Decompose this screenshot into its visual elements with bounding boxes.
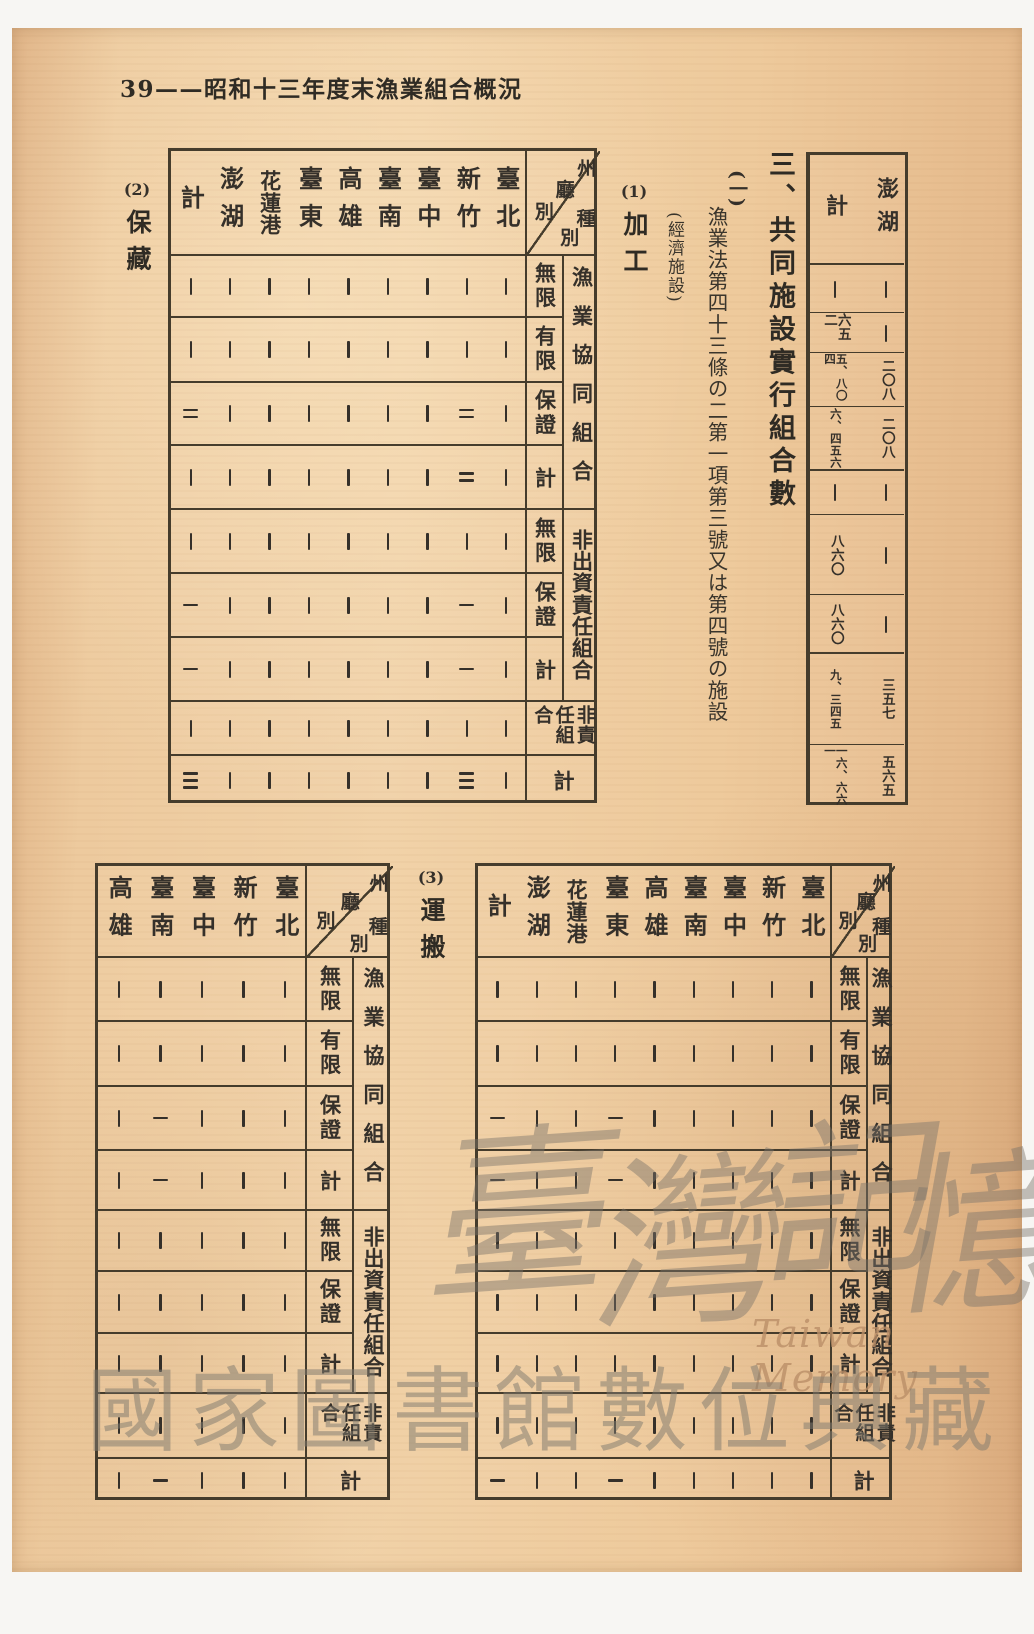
value-dash — [159, 1355, 161, 1372]
table-rule — [98, 1270, 353, 1272]
axis-label: 別 — [316, 906, 335, 933]
data-cell: 二〇八 — [860, 353, 912, 407]
value-dash — [118, 1172, 120, 1189]
data-cell — [478, 1271, 517, 1333]
table-rule — [171, 254, 594, 256]
column-header-label: 臺北 — [489, 166, 524, 240]
value-dash — [118, 1232, 120, 1249]
row-label: 非責任組合 — [831, 1393, 895, 1458]
data-cell — [556, 1333, 595, 1393]
value-number-3 — [183, 772, 198, 789]
data-cell — [674, 1150, 713, 1210]
data-cell — [674, 1210, 713, 1271]
value-number-1 — [459, 604, 474, 607]
value-dash — [575, 1472, 577, 1489]
table-rule — [478, 1392, 889, 1394]
axis-label: 種 — [577, 204, 596, 231]
data-cell — [556, 1393, 595, 1458]
row-label-text: 無限 — [315, 965, 345, 1014]
table-rule — [478, 1332, 867, 1334]
value-dash — [308, 597, 310, 614]
value-dash — [268, 341, 270, 358]
data-cell — [517, 1333, 556, 1393]
value-dash — [614, 1232, 616, 1249]
column-header-label: 計 — [819, 194, 851, 227]
row-label: 無限 — [831, 958, 867, 1021]
value-dash — [834, 484, 836, 501]
data-cell — [792, 1210, 831, 1271]
column-header-label: 新竹 — [755, 875, 790, 949]
table-rule — [171, 754, 594, 756]
data-cell — [792, 1458, 831, 1503]
value-dash — [496, 981, 498, 998]
data-cell — [171, 509, 210, 573]
data-cell — [408, 573, 447, 637]
value-dash — [505, 405, 507, 422]
value-dash — [575, 1045, 577, 1062]
value-dash — [201, 1355, 203, 1372]
value-dash — [347, 597, 349, 614]
data-cell — [289, 573, 328, 637]
column-header-臺中: 臺中 — [713, 866, 752, 958]
value-number: 二〇八 — [879, 417, 893, 460]
data-cell — [674, 1393, 713, 1458]
data-cell — [792, 1021, 831, 1086]
data-cell — [171, 573, 210, 637]
value-dash — [426, 341, 428, 358]
data-cell — [223, 1333, 265, 1393]
row-label-text: 非責任組合 — [318, 1403, 382, 1449]
data-cell — [98, 1150, 140, 1210]
data-cell: 九、三四五 — [810, 653, 860, 745]
data-cell — [98, 958, 140, 1021]
value-dash — [536, 1232, 538, 1249]
column-header-計: 計 — [810, 155, 860, 265]
value-dash — [426, 597, 428, 614]
value-dash — [347, 533, 349, 550]
value-dash — [268, 533, 270, 550]
value-dash — [732, 1045, 734, 1062]
row-label: 保證 — [526, 573, 563, 637]
value-dash — [308, 720, 310, 737]
value-dash — [885, 281, 887, 298]
column-header-label: 臺南 — [370, 166, 405, 240]
value-dash — [242, 1045, 244, 1062]
data-cell — [329, 382, 368, 445]
value-dash — [575, 981, 577, 998]
data-cell — [98, 1021, 140, 1086]
value-dash — [284, 1045, 286, 1062]
row-label-text: 保證 — [834, 1278, 864, 1327]
value-dash — [190, 341, 192, 358]
table-rule — [525, 151, 527, 800]
value-dash — [732, 1294, 734, 1311]
value-dash — [229, 720, 231, 737]
data-cell — [98, 1393, 140, 1458]
value-dash — [732, 1355, 734, 1372]
row-label-text: 無限 — [530, 262, 560, 311]
value-dash — [284, 981, 286, 998]
column-header-臺南: 臺南 — [140, 866, 182, 958]
subsection-number: (3) — [418, 868, 444, 887]
data-cell — [264, 958, 306, 1021]
table-processing: 計澎湖花蓮港臺東高雄臺南臺中新竹臺北州廳別種別無限有限保證計無限保證計非責任組合… — [168, 148, 597, 803]
data-cell — [223, 1021, 265, 1086]
data-cell — [487, 701, 526, 755]
row-label-text: 計 — [335, 1470, 365, 1491]
table-rule — [352, 958, 354, 1393]
data-cell — [223, 1271, 265, 1333]
data-cell — [368, 637, 407, 701]
data-cell — [635, 1393, 674, 1458]
value-dash — [229, 405, 231, 422]
data-cell — [810, 265, 860, 313]
value-number-1 — [183, 604, 198, 607]
data-cell — [478, 1458, 517, 1503]
data-cell — [250, 755, 289, 806]
column-header-label: 花蓮港 — [561, 879, 591, 945]
data-cell — [329, 701, 368, 755]
row-label: 保證 — [831, 1086, 867, 1150]
value-dash — [693, 1232, 695, 1249]
data-cell — [250, 509, 289, 573]
section-title: 三、共同施設實行組合數 — [760, 150, 799, 512]
column-header-花蓮港: 花蓮港 — [556, 866, 595, 958]
data-cell — [478, 1086, 517, 1150]
data-cell — [635, 958, 674, 1021]
column-header-label: 臺北 — [794, 875, 829, 949]
row-label: 計 — [306, 1458, 393, 1503]
data-cell — [289, 317, 328, 382]
data-cell — [210, 256, 249, 317]
value-dash — [810, 981, 812, 998]
column-header-label: 高雄 — [637, 875, 672, 949]
item-text: 漁業法第四十三條の二第一項第三號又は第四號の施設 — [701, 206, 731, 723]
value-dash — [653, 1472, 655, 1489]
value-dash — [190, 469, 192, 486]
data-cell — [408, 701, 447, 755]
value-dash — [159, 981, 161, 998]
data-cell: 六、四五六 — [810, 407, 860, 470]
row-label: 計 — [526, 755, 600, 806]
value-dash — [575, 1110, 577, 1127]
column-header-臺南: 臺南 — [674, 866, 713, 958]
value-dash — [885, 616, 887, 633]
value-dash — [308, 405, 310, 422]
subsection-number: (1) — [621, 182, 647, 201]
group-label: 非出資責任組合 — [563, 509, 600, 701]
value-dash — [229, 278, 231, 295]
data-cell — [264, 1458, 306, 1503]
value-dash — [159, 1045, 161, 1062]
data-cell — [408, 755, 447, 806]
value-dash — [536, 1355, 538, 1372]
value-dash — [190, 533, 192, 550]
value-number-1 — [490, 1479, 505, 1482]
data-cell — [556, 1458, 595, 1503]
data-cell — [98, 1271, 140, 1333]
scanned-document-page: 39——昭和十三年度末漁業組合概況 三、共同施設實行組合數 (一) 漁業法第四十… — [0, 0, 1034, 1634]
diagonal-axis-header: 州廳別種別 — [526, 151, 600, 256]
subsection-number: (2) — [124, 180, 150, 199]
data-cell — [171, 445, 210, 509]
column-header-label: 臺中 — [715, 875, 750, 949]
data-cell — [517, 1210, 556, 1271]
subsection-label-transport: (3) 運搬 — [410, 868, 452, 970]
data-cell — [181, 1458, 223, 1503]
value-dash — [387, 533, 389, 550]
value-number-2 — [459, 472, 474, 482]
value-dash — [201, 1172, 203, 1189]
data-cell — [596, 958, 635, 1021]
value-dash — [885, 547, 887, 564]
value-dash — [118, 1417, 120, 1434]
data-cell — [98, 1210, 140, 1271]
column-header-label: 澎湖 — [519, 875, 554, 949]
value-dash — [242, 1355, 244, 1372]
row-label-text: 保證 — [530, 389, 560, 438]
value-dash — [834, 281, 836, 298]
data-cell — [753, 1086, 792, 1150]
data-cell — [329, 256, 368, 317]
value-dash — [653, 1172, 655, 1189]
column-header-label: 計 — [173, 185, 208, 222]
data-cell — [753, 1021, 792, 1086]
subsection-label-storage: (2) 保藏 — [116, 180, 158, 282]
value-dash — [159, 1294, 161, 1311]
column-header-label: 臺東 — [598, 875, 633, 949]
data-cell — [368, 256, 407, 317]
column-header-label: 新竹 — [226, 875, 261, 949]
value-number-1 — [608, 1479, 623, 1482]
value-dash — [242, 1110, 244, 1127]
data-cell — [210, 445, 249, 509]
value-dash — [190, 720, 192, 737]
data-cell — [713, 1021, 752, 1086]
value-dash — [268, 405, 270, 422]
data-cell — [596, 1210, 635, 1271]
column-header-label: 臺東 — [292, 166, 327, 240]
data-cell — [250, 445, 289, 509]
row-label: 非責任組合 — [526, 701, 600, 755]
group-label: 非出資責任組合 — [867, 1210, 895, 1393]
value-number-1 — [490, 1179, 505, 1182]
data-cell — [447, 317, 486, 382]
data-cell — [223, 1210, 265, 1271]
value-dash — [426, 661, 428, 678]
value-dash — [347, 720, 349, 737]
value-number: 八六〇 — [828, 534, 842, 577]
data-cell — [408, 382, 447, 445]
data-cell — [329, 445, 368, 509]
subsection-text: 保藏 — [119, 209, 155, 282]
value-dash — [426, 469, 428, 486]
data-cell — [753, 1210, 792, 1271]
value-dash — [426, 533, 428, 550]
data-cell — [517, 1393, 556, 1458]
data-cell — [329, 573, 368, 637]
data-cell — [487, 509, 526, 573]
column-header-花蓮港: 花蓮港 — [250, 151, 289, 256]
table-rule — [171, 700, 594, 702]
value-dash — [732, 1417, 734, 1434]
value-dash — [242, 1294, 244, 1311]
value-number: 六五二 — [821, 313, 849, 353]
row-label: 計 — [831, 1150, 867, 1210]
group-label-text: 非出資責任組合 — [358, 1226, 388, 1377]
value-dash — [496, 1294, 498, 1311]
data-cell — [171, 637, 210, 701]
data-cell — [250, 637, 289, 701]
data-cell — [140, 1210, 182, 1271]
group-label-text: 非出資責任組合 — [866, 1226, 896, 1377]
value-dash — [771, 1294, 773, 1311]
row-label: 有限 — [306, 1021, 353, 1086]
data-cell — [674, 1271, 713, 1333]
value-dash — [810, 1172, 812, 1189]
value-dash — [653, 1417, 655, 1434]
data-cell — [250, 317, 289, 382]
table-rule — [171, 636, 563, 638]
row-label-text: 有限 — [834, 1029, 864, 1078]
value-dash — [771, 1172, 773, 1189]
group-label-text: 非出資責任組合 — [567, 529, 597, 680]
value-dash — [771, 1355, 773, 1372]
value-dash — [732, 1172, 734, 1189]
data-cell — [517, 1271, 556, 1333]
data-cell — [596, 1086, 635, 1150]
row-label: 無限 — [526, 509, 563, 573]
row-label: 計 — [306, 1150, 353, 1210]
value-dash — [653, 1045, 655, 1062]
table-rule — [98, 1392, 387, 1394]
diagonal-axis-header: 州廳別種別 — [306, 866, 393, 958]
column-header-臺北: 臺北 — [792, 866, 831, 958]
data-cell — [289, 445, 328, 509]
value-number: 六、四五六 — [829, 408, 841, 468]
value-dash — [810, 1417, 812, 1434]
value-dash — [201, 1472, 203, 1489]
value-dash — [268, 469, 270, 486]
data-cell — [264, 1021, 306, 1086]
value-dash — [201, 981, 203, 998]
data-cell — [674, 958, 713, 1021]
column-header-label: 臺北 — [268, 875, 303, 949]
data-cell — [713, 1271, 752, 1333]
data-cell — [223, 958, 265, 1021]
value-dash — [505, 341, 507, 358]
value-dash — [229, 597, 231, 614]
data-cell — [674, 1021, 713, 1086]
data-cell — [329, 317, 368, 382]
data-cell — [289, 382, 328, 445]
data-cell — [596, 1393, 635, 1458]
data-cell — [596, 1271, 635, 1333]
value-dash — [284, 1294, 286, 1311]
value-number: 二〇八 — [879, 359, 893, 402]
data-cell — [98, 1458, 140, 1503]
data-cell — [635, 1021, 674, 1086]
value-dash — [653, 1294, 655, 1311]
value-dash — [118, 1472, 120, 1489]
column-header-澎湖: 澎湖 — [860, 155, 912, 265]
value-dash — [496, 1355, 498, 1372]
data-cell — [556, 1021, 595, 1086]
value-number: 八六〇 — [828, 603, 842, 646]
data-cell — [140, 1021, 182, 1086]
data-cell — [140, 1086, 182, 1150]
value-dash — [575, 1294, 577, 1311]
value-dash — [347, 772, 349, 789]
axis-label: 廳 — [857, 887, 876, 914]
value-dash — [308, 469, 310, 486]
data-cell: 一六、六六一 — [810, 745, 860, 808]
data-cell — [478, 1150, 517, 1210]
row-label: 非責任組合 — [306, 1393, 393, 1458]
row-label: 有限 — [526, 317, 563, 382]
column-header-計: 計 — [171, 151, 210, 256]
row-label: 無限 — [306, 1210, 353, 1271]
data-cell — [250, 701, 289, 755]
data-cell — [210, 637, 249, 701]
value-dash — [229, 341, 231, 358]
value-dash — [308, 533, 310, 550]
data-cell — [487, 445, 526, 509]
axis-label: 別 — [839, 906, 858, 933]
group-label-text: 漁業協同組合 — [866, 967, 896, 1200]
value-dash — [771, 1417, 773, 1434]
data-cell — [596, 1150, 635, 1210]
data-cell — [264, 1271, 306, 1333]
data-cell — [713, 1086, 752, 1150]
data-cell — [368, 573, 407, 637]
data-cell — [368, 509, 407, 573]
value-dash — [268, 278, 270, 295]
value-dash — [284, 1355, 286, 1372]
row-label: 保證 — [831, 1271, 867, 1333]
value-dash — [387, 597, 389, 614]
value-dash — [614, 1417, 616, 1434]
data-cell — [478, 958, 517, 1021]
data-cell — [753, 1393, 792, 1458]
value-dash — [693, 981, 695, 998]
column-header-臺北: 臺北 — [264, 866, 306, 958]
value-dash — [201, 1417, 203, 1434]
column-header-新竹: 新竹 — [447, 151, 486, 256]
value-dash — [693, 1045, 695, 1062]
value-dash — [159, 1232, 161, 1249]
data-cell — [556, 1271, 595, 1333]
data-cell — [487, 573, 526, 637]
data-cell — [447, 701, 486, 755]
value-dash — [387, 720, 389, 737]
value-dash — [536, 1110, 538, 1127]
value-dash — [693, 1294, 695, 1311]
value-dash — [653, 1355, 655, 1372]
value-dash — [308, 772, 310, 789]
data-cell — [171, 256, 210, 317]
value-dash — [536, 1417, 538, 1434]
data-cell — [223, 1458, 265, 1503]
value-dash — [505, 597, 507, 614]
value-dash — [536, 1294, 538, 1311]
value-dash — [653, 1110, 655, 1127]
value-dash — [496, 1045, 498, 1062]
column-header-臺中: 臺中 — [408, 151, 447, 256]
data-cell — [181, 958, 223, 1021]
data-cell: 六五二 — [810, 313, 860, 353]
data-cell — [792, 1086, 831, 1150]
